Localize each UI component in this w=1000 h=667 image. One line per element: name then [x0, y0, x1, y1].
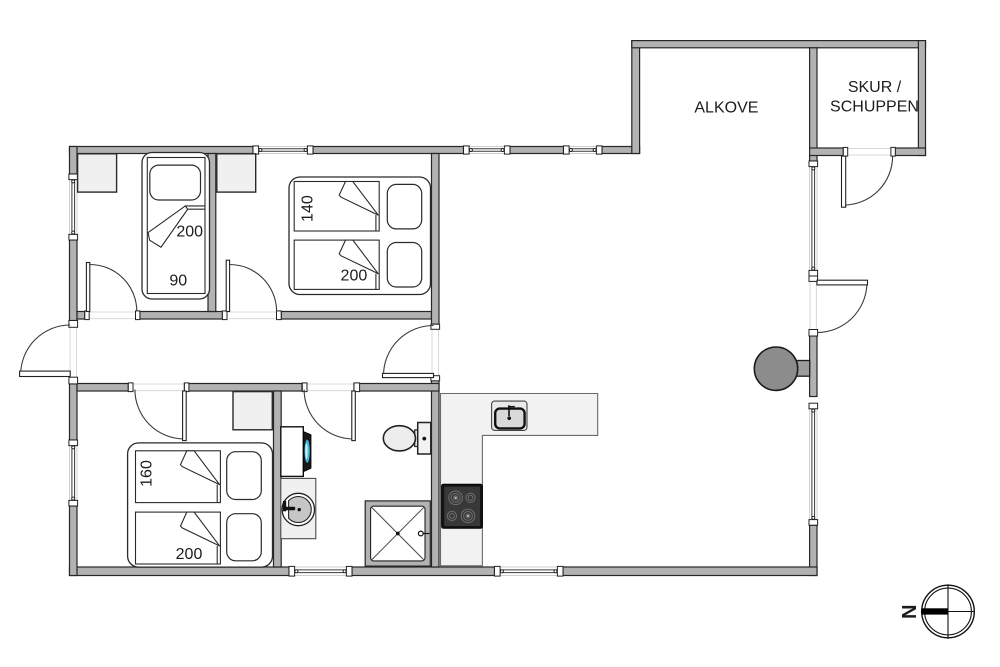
- svg-text:200: 200: [176, 223, 203, 240]
- svg-text:N: N: [899, 605, 921, 619]
- svg-text:200: 200: [176, 546, 203, 563]
- svg-text:140: 140: [299, 195, 316, 222]
- svg-text:200: 200: [341, 267, 368, 284]
- svg-text:SCHUPPEN: SCHUPPEN: [830, 99, 919, 116]
- svg-text:ALKOVE: ALKOVE: [694, 99, 758, 116]
- svg-text:160: 160: [139, 460, 156, 487]
- svg-text:SKUR /: SKUR /: [848, 79, 902, 96]
- svg-text:90: 90: [169, 272, 187, 289]
